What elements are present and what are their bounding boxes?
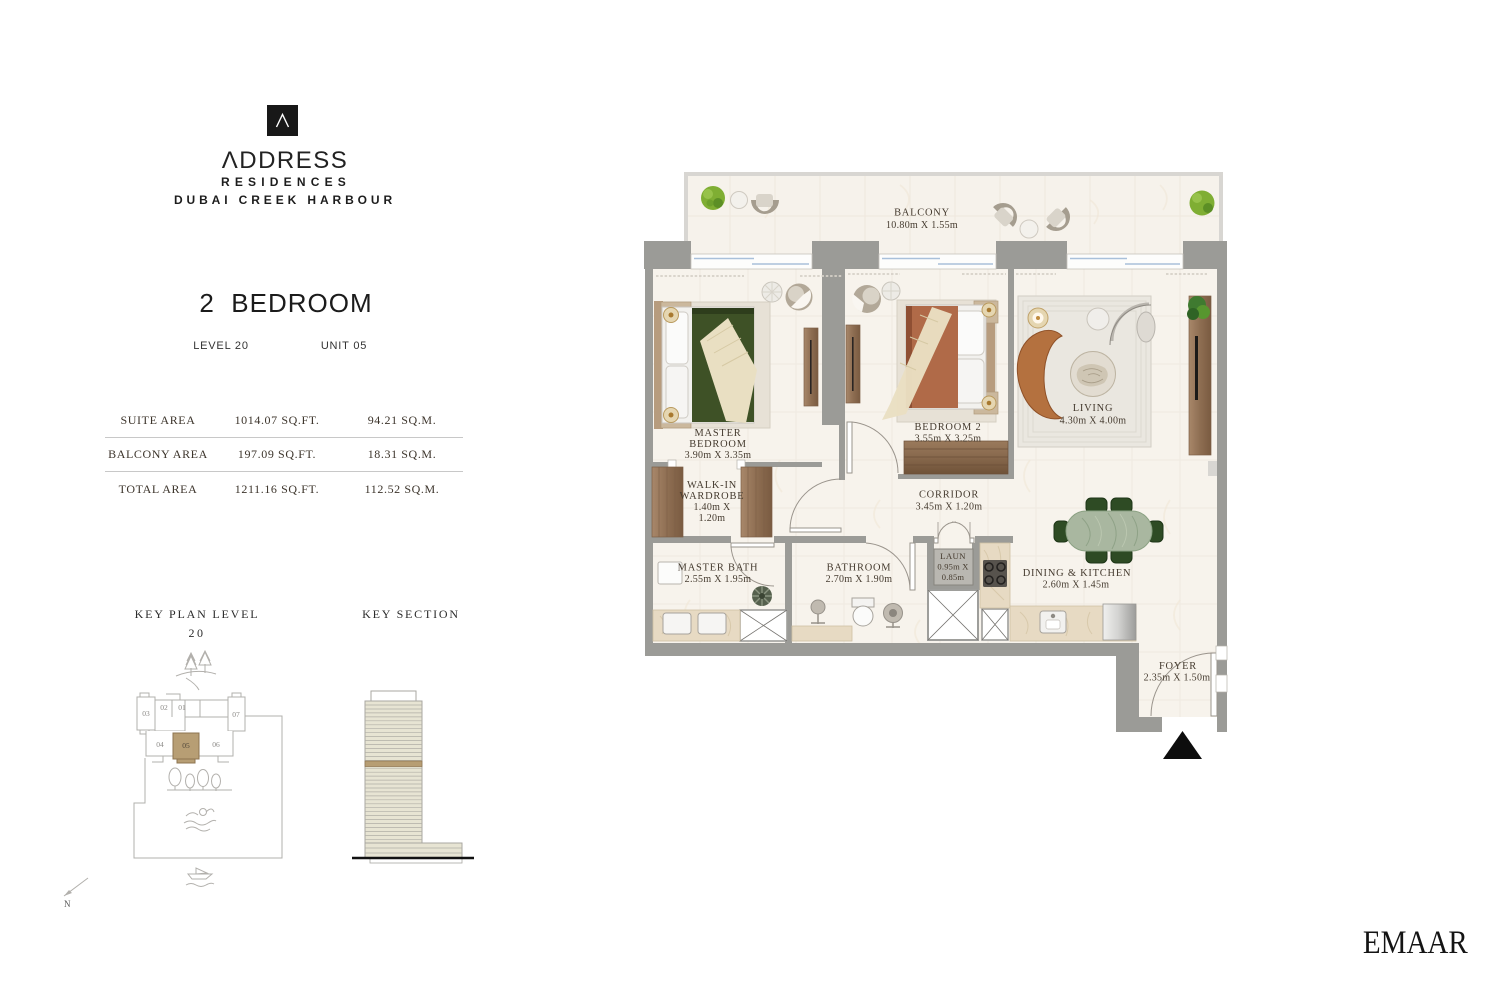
svg-text:05: 05 [182, 741, 190, 750]
svg-text:LIVING: LIVING [1073, 403, 1114, 414]
svg-text:03: 03 [142, 709, 150, 718]
svg-text:1.40m X: 1.40m X [693, 502, 731, 513]
svg-text:10.80m X 1.55m: 10.80m X 1.55m [886, 220, 958, 231]
svg-text:MASTER: MASTER [695, 428, 742, 439]
svg-text:2.70m X 1.90m: 2.70m X 1.90m [826, 574, 893, 585]
svg-text:3.55m X 3.25m: 3.55m X 3.25m [915, 434, 982, 445]
svg-text:3.45m X 1.20m: 3.45m X 1.20m [916, 502, 983, 513]
svg-text:2.55m X 1.95m: 2.55m X 1.95m [685, 574, 752, 585]
svg-text:01: 01 [178, 703, 186, 712]
svg-text:CORRIDOR: CORRIDOR [919, 490, 979, 501]
svg-text:02: 02 [160, 703, 168, 712]
svg-text:2.60m X 1.45m: 2.60m X 1.45m [1043, 580, 1110, 591]
svg-text:WALK-IN: WALK-IN [687, 480, 737, 491]
svg-text:WARDROBE: WARDROBE [680, 491, 745, 502]
svg-text:BALCONY: BALCONY [894, 208, 950, 219]
svg-text:2.35m X 1.50m: 2.35m X 1.50m [1144, 673, 1211, 684]
svg-text:N: N [64, 899, 71, 909]
svg-text:07: 07 [232, 710, 240, 719]
svg-text:04: 04 [156, 740, 164, 749]
svg-text:BEDROOM: BEDROOM [689, 439, 747, 450]
svg-text:BATHROOM: BATHROOM [827, 563, 892, 574]
svg-text:0.85m: 0.85m [942, 572, 965, 582]
svg-text:FOYER: FOYER [1159, 661, 1197, 672]
svg-text:1.20m: 1.20m [699, 513, 726, 524]
svg-text:DINING & KITCHEN: DINING & KITCHEN [1023, 568, 1132, 579]
svg-text:LAUN: LAUN [940, 551, 966, 561]
svg-text:3.90m X 3.35m: 3.90m X 3.35m [685, 450, 752, 461]
svg-text:06: 06 [212, 740, 220, 749]
svg-text:4.30m X 4.00m: 4.30m X 4.00m [1060, 416, 1127, 427]
svg-text:BEDROOM 2: BEDROOM 2 [915, 422, 982, 433]
svg-text:0.95m X: 0.95m X [937, 562, 968, 572]
svg-text:MASTER BATH: MASTER BATH [678, 563, 759, 574]
